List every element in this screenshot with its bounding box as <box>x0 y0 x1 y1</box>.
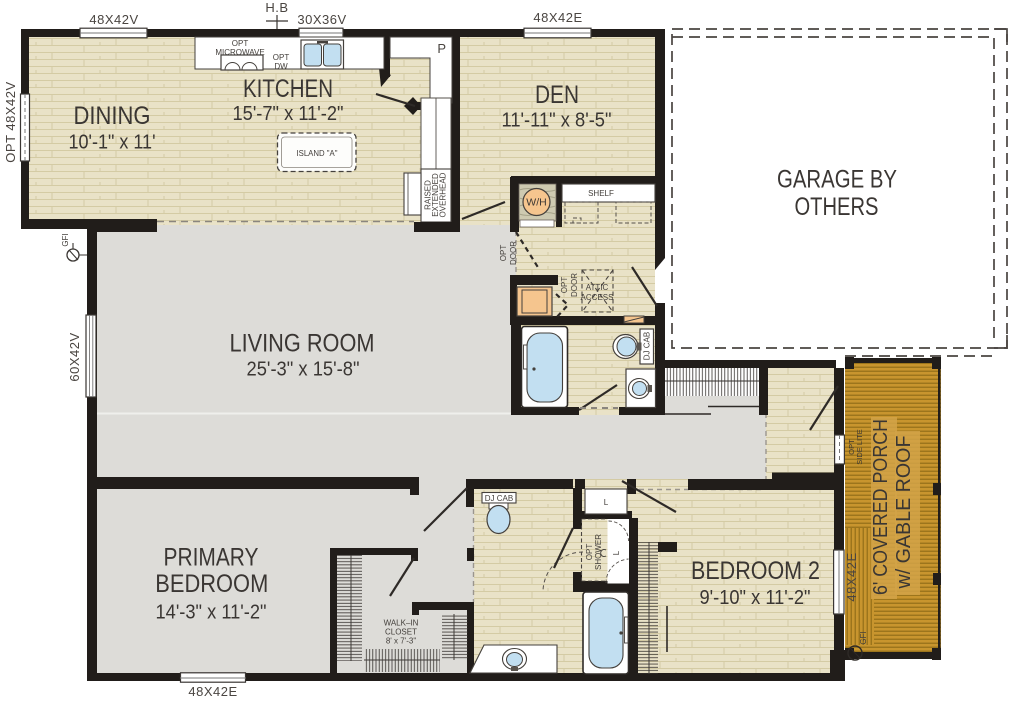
svg-text:GARAGE BY: GARAGE BY <box>777 166 897 194</box>
svg-text:8' x 7'-3": 8' x 7'-3" <box>386 637 417 646</box>
svg-text:ISLAND "A": ISLAND "A" <box>297 149 338 158</box>
svg-text:BEDROOM 2: BEDROOM 2 <box>691 557 820 585</box>
svg-text:SHOWER: SHOWER <box>594 534 603 570</box>
svg-text:PRIMARY: PRIMARY <box>164 544 259 572</box>
svg-text:L: L <box>604 498 609 507</box>
svg-text:MICROWAVE: MICROWAVE <box>215 48 264 57</box>
svg-text:60X42V: 60X42V <box>67 332 82 381</box>
svg-text:DJ CAB: DJ CAB <box>643 332 652 360</box>
svg-text:48X42E: 48X42E <box>844 552 859 601</box>
svg-text:OPT: OPT <box>273 53 290 62</box>
svg-text:LIVING ROOM: LIVING ROOM <box>230 330 375 358</box>
svg-text:OPT: OPT <box>585 544 594 561</box>
svg-text:BEDROOM: BEDROOM <box>155 570 268 598</box>
svg-text:DOOR: DOOR <box>570 273 579 297</box>
svg-text:OVERHEAD: OVERHEAD <box>439 172 448 217</box>
svg-text:w/ GABLE ROOF: w/ GABLE ROOF <box>892 436 915 590</box>
svg-text:ACCESS: ACCESS <box>581 293 614 302</box>
svg-text:25'-3" x 15'-8": 25'-3" x 15'-8" <box>247 359 360 381</box>
svg-text:DOOR: DOOR <box>509 241 518 265</box>
svg-text:OPT: OPT <box>232 39 249 48</box>
svg-text:15'-7" x 11'-2": 15'-7" x 11'-2" <box>233 103 344 125</box>
svg-text:DEN: DEN <box>535 81 579 109</box>
svg-text:10'-1" x 11': 10'-1" x 11' <box>69 132 156 154</box>
svg-text:GFI: GFI <box>61 233 70 246</box>
svg-text:L: L <box>612 550 621 555</box>
svg-text:W/H: W/H <box>526 197 546 209</box>
svg-text:OTHERS: OTHERS <box>795 193 879 221</box>
svg-text:48X42E: 48X42E <box>188 684 237 699</box>
svg-text:48X42V: 48X42V <box>89 12 138 27</box>
svg-text:H.B: H.B <box>265 0 288 15</box>
svg-text:SIDE LITE: SIDE LITE <box>855 429 864 464</box>
svg-text:OPT: OPT <box>560 277 569 294</box>
svg-text:SHELF: SHELF <box>588 189 614 198</box>
svg-text:14'-3" x 11'-2": 14'-3" x 11'-2" <box>156 602 267 624</box>
svg-text:OPT: OPT <box>499 245 508 262</box>
svg-text:ATTIC: ATTIC <box>586 283 609 292</box>
svg-text:P: P <box>437 41 446 56</box>
svg-text:9'-10" x 11'-2": 9'-10" x 11'-2" <box>700 587 811 609</box>
svg-text:CLOSET: CLOSET <box>385 628 417 637</box>
svg-text:KITCHEN: KITCHEN <box>243 75 333 103</box>
svg-text:GFI: GFI <box>859 631 868 644</box>
svg-text:DW: DW <box>274 62 288 71</box>
svg-text:DINING: DINING <box>74 102 151 130</box>
svg-text:WALK–IN: WALK–IN <box>384 619 419 628</box>
svg-text:OPT 48X42V: OPT 48X42V <box>3 81 18 162</box>
svg-text:DJ CAB: DJ CAB <box>485 494 513 503</box>
svg-text:30X36V: 30X36V <box>297 12 346 27</box>
svg-text:6' COVERED PORCH: 6' COVERED PORCH <box>869 419 892 595</box>
svg-text:11'-11" x 8'-5": 11'-11" x 8'-5" <box>502 110 612 132</box>
svg-text:48X42E: 48X42E <box>533 10 582 25</box>
